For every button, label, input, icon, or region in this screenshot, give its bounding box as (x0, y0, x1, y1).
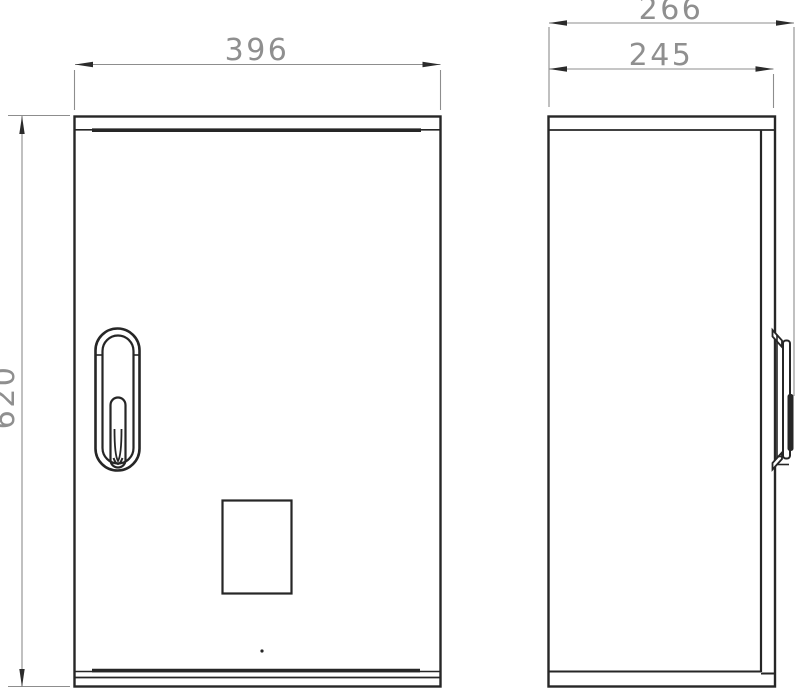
arrowhead-left (75, 62, 93, 67)
dim-front-width: 396 (75, 33, 441, 110)
arrowhead-right (756, 66, 774, 71)
side-outline (549, 117, 776, 687)
arrowhead-left (549, 20, 567, 25)
enclosure-technical-drawing: 396 620 266 245 (0, 0, 800, 689)
label-window (223, 501, 292, 594)
arrowhead-right (776, 20, 794, 25)
front-view (75, 117, 441, 687)
dim-front-height: 620 (0, 116, 70, 688)
arrowhead-bottom (19, 669, 24, 687)
arrowhead-top (19, 116, 24, 134)
dim-text-body-depth: 245 (629, 38, 694, 73)
side-view (549, 117, 794, 687)
dim-text-overall-depth: 266 (639, 0, 704, 27)
dim-text-front-width: 396 (225, 33, 290, 68)
side-handle-grip (788, 394, 794, 451)
dim-text-front-height: 620 (0, 365, 22, 430)
front-outline (75, 117, 441, 687)
dim-side-body-depth: 245 (549, 38, 774, 108)
drawing-canvas: 396 620 266 245 (0, 0, 800, 689)
arrowhead-right (423, 62, 441, 67)
lock-dot (260, 649, 263, 652)
arrowhead-left (549, 66, 567, 71)
